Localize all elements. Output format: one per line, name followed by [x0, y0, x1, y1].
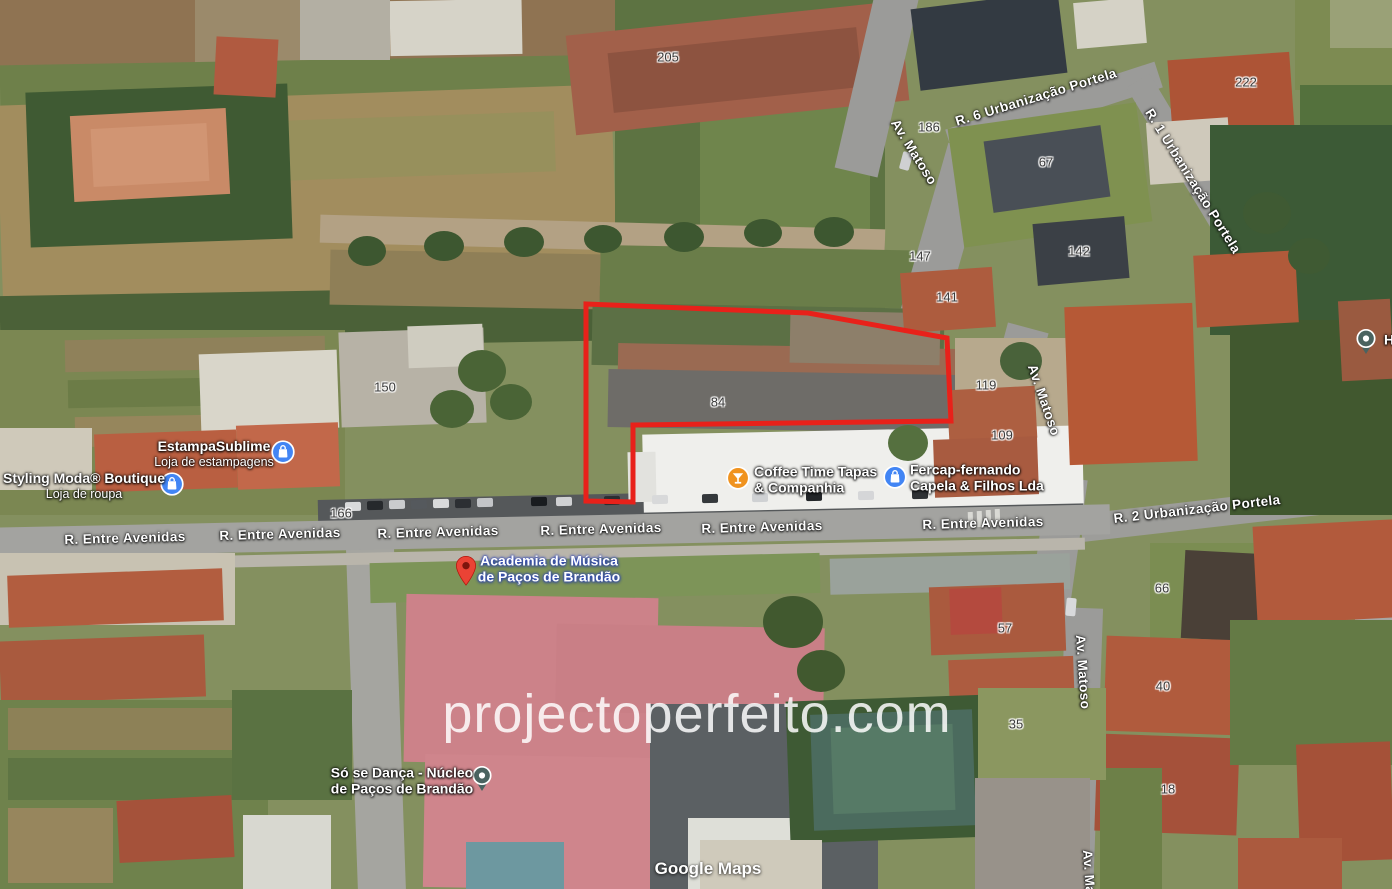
watermark: projectoperfeito.com: [442, 683, 951, 745]
poi-label-line: Só se Dança - Núcleo: [331, 766, 473, 782]
building-number: 186: [918, 120, 940, 135]
cocktail-icon[interactable]: [726, 466, 750, 495]
building-number: 109: [991, 428, 1013, 443]
poi-label[interactable]: EstampaSublimeLoja de estampagens: [154, 439, 274, 469]
street-label: R. Entre Avenidas: [377, 523, 499, 541]
building-number: 35: [1009, 717, 1023, 732]
building-number: 67: [1039, 155, 1053, 170]
building-number: 205: [657, 50, 679, 65]
poi-layer: Styling Moda® BoutiqueLoja de roupaEstam…: [0, 0, 1392, 889]
poi-label-line: de Paços de Brandão: [331, 781, 473, 797]
poi-label-line: de Paços de Brandão: [478, 569, 620, 585]
poi-label[interactable]: Academia de Músicade Paços de Brandão: [478, 554, 620, 585]
building-number: 66: [1155, 581, 1169, 596]
satellite-map-canvas[interactable]: R. Entre AvenidasR. Entre AvenidasR. Ent…: [0, 0, 1392, 889]
poi-label-line: EstampaSublime: [154, 439, 274, 455]
street-label: R. Entre Avenidas: [540, 520, 662, 538]
poi-label-line: & Companhia: [754, 480, 877, 496]
building-number: 141: [936, 290, 958, 305]
google-maps-attribution: Google Maps: [655, 859, 762, 879]
poi-label[interactable]: H: [1384, 332, 1392, 348]
poi-subtitle: Loja de estampagens: [154, 455, 274, 470]
poi-label-line: Academia de Música: [478, 554, 620, 570]
building-number: 222: [1235, 75, 1257, 90]
poi-subtitle: Loja de roupa: [3, 487, 165, 502]
building-number: 119: [976, 378, 997, 393]
building-number: 57: [998, 621, 1012, 636]
poi-label-line: Coffee Time Tapas: [754, 465, 877, 481]
building-number: 150: [374, 380, 396, 395]
poi-label-line: Styling Moda® Boutique: [3, 471, 165, 487]
poi-label[interactable]: Coffee Time Tapas& Companhia: [754, 465, 877, 496]
shopping-bag-icon[interactable]: [271, 440, 295, 469]
building-number: 84: [711, 395, 725, 410]
street-label: R. Entre Avenidas: [64, 529, 186, 547]
shopping-bag-icon[interactable]: [883, 465, 907, 494]
poi-label[interactable]: Styling Moda® BoutiqueLoja de roupa: [3, 471, 165, 501]
poi-label[interactable]: Fercap-fernandoCapela & Filhos Lda: [910, 463, 1044, 494]
building-number: 40: [1156, 679, 1170, 694]
poi-label-line: Fercap-fernando: [910, 463, 1044, 479]
street-label: R. Entre Avenidas: [701, 518, 823, 536]
building-number: 166: [330, 506, 352, 521]
building-number: 18: [1161, 782, 1175, 797]
poi-label-line: Capela & Filhos Lda: [910, 478, 1044, 494]
street-label: R. Entre Avenidas: [922, 514, 1044, 532]
poi-label-line: H: [1384, 332, 1392, 348]
building-number: 142: [1068, 244, 1090, 259]
building-number: 147: [909, 249, 931, 264]
poi-label[interactable]: Só se Dança - Núcleode Paços de Brandão: [331, 766, 473, 797]
street-label: R. Entre Avenidas: [219, 525, 341, 543]
red-map-pin-icon[interactable]: [455, 555, 477, 592]
teal-map-pin-icon[interactable]: [1353, 328, 1379, 360]
